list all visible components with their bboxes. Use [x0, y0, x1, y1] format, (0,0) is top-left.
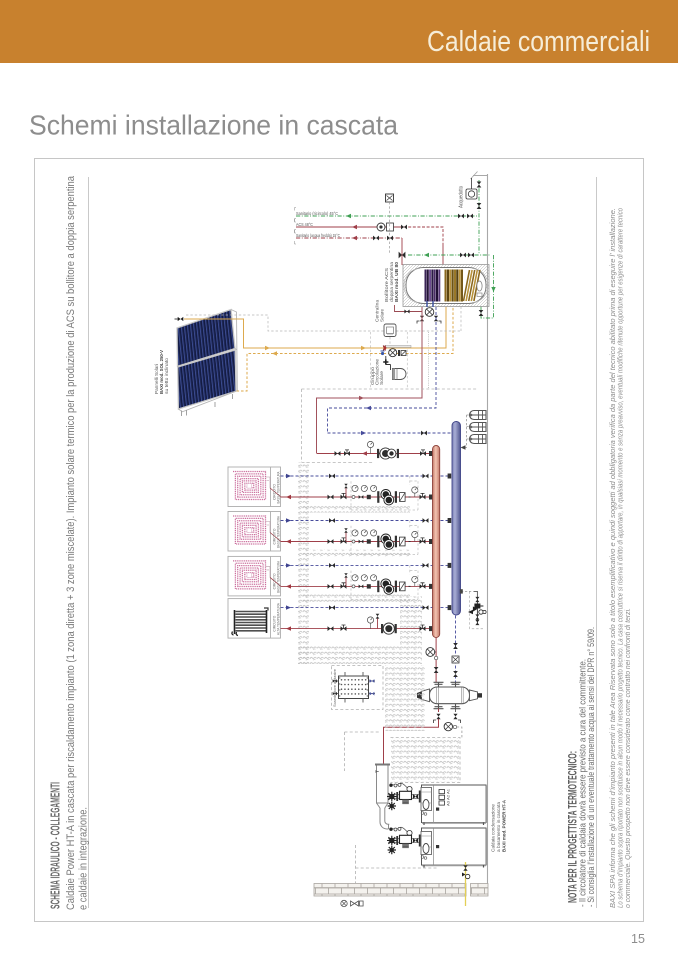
svg-text:A3 A2 A1: A3 A2 A1 [447, 789, 451, 806]
svg-text:Solare: Solare [380, 308, 385, 322]
svg-text:BAXI mod. UB 80: BAXI mod. UB 80 [394, 262, 399, 302]
svg-text:- Si consiglia l’installazione: - Si consiglia l’installazione di un eve… [586, 627, 596, 907]
svg-text:Lo schema d’impianto sopra rip: Lo schema d’impianto sopra riportato non… [618, 208, 625, 908]
svg-text:BASSA TEMPERATURA: BASSA TEMPERATURA [277, 471, 281, 503]
svg-text:a basamento in cascata: a basamento in cascata [496, 802, 501, 852]
svg-text:Scambiatore a piastre: Scambiatore a piastre [333, 669, 337, 707]
svg-text:su tetto inclinato: su tetto inclinato [164, 358, 169, 394]
svg-text:o commerciale. Questo prospett: o commerciale. Questo prospetto non deve… [625, 608, 632, 908]
svg-text:BAXI SPA informa che gli schem: BAXI SPA informa che gli schemi d’impian… [610, 208, 617, 908]
svg-text:Acquedotto: Acquedotto [459, 186, 465, 208]
svg-text:ALTA TEMPERATURA: ALTA TEMPERATURA [277, 603, 281, 636]
svg-text:ACS 48°C: ACS 48°C [296, 222, 314, 227]
svg-text:Caldaia condensazione: Caldaia condensazione [491, 804, 496, 852]
svg-text:Sanitario (acqua fredda) 15°C: Sanitario (acqua fredda) 15°C [296, 233, 340, 238]
svg-text:Sanitario (ricircolo) 45°C: Sanitario (ricircolo) 45°C [296, 211, 339, 216]
svg-text:Solare: Solare [379, 370, 384, 385]
svg-text:BASSA TEMPERATURA: BASSA TEMPERATURA [277, 516, 281, 548]
svg-text:e caldaie in integrazione.: e caldaie in integrazione. [78, 807, 90, 910]
svg-text:SCHEMA IDRAULICO - COLLEGAMENT: SCHEMA IDRAULICO - COLLEGAMENTI [48, 782, 63, 909]
svg-text:BAXI mod. POWER HT-A: BAXI mod. POWER HT-A [502, 799, 507, 852]
svg-text:BASSA TEMPERATURA: BASSA TEMPERATURA [277, 560, 281, 592]
svg-text:Caldaie Power HT-A in cascata: Caldaie Power HT-A in cascata per riscal… [65, 175, 77, 910]
